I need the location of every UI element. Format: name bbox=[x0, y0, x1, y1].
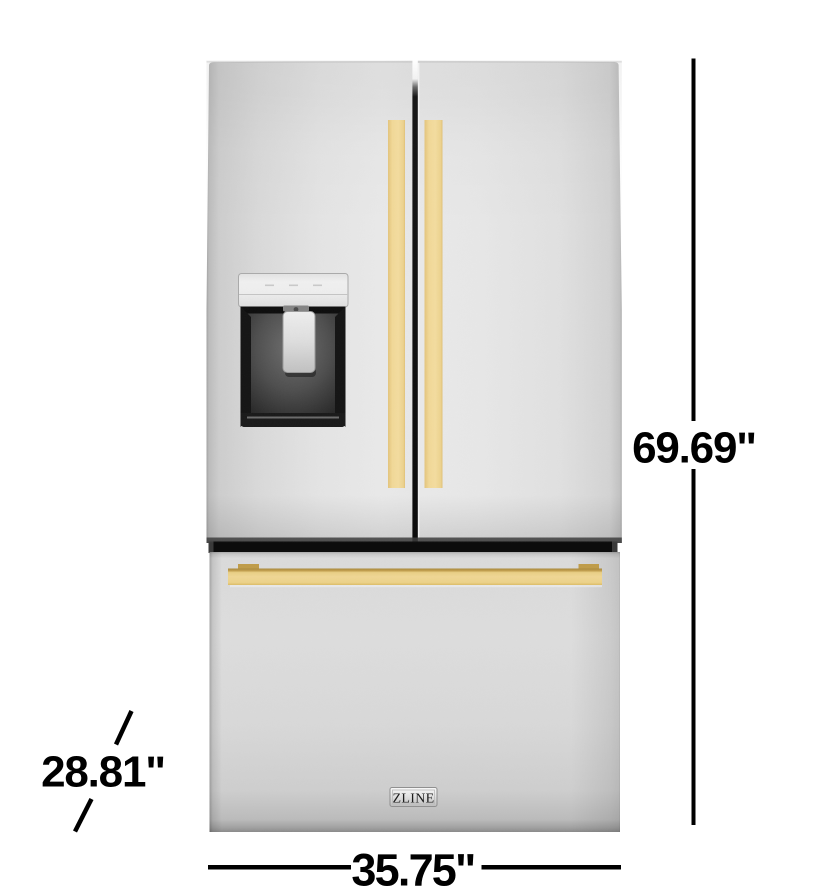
svg-text:28.81": 28.81" bbox=[41, 748, 165, 797]
svg-text:35.75": 35.75" bbox=[351, 845, 474, 893]
svg-text:69.69": 69.69" bbox=[632, 424, 756, 473]
